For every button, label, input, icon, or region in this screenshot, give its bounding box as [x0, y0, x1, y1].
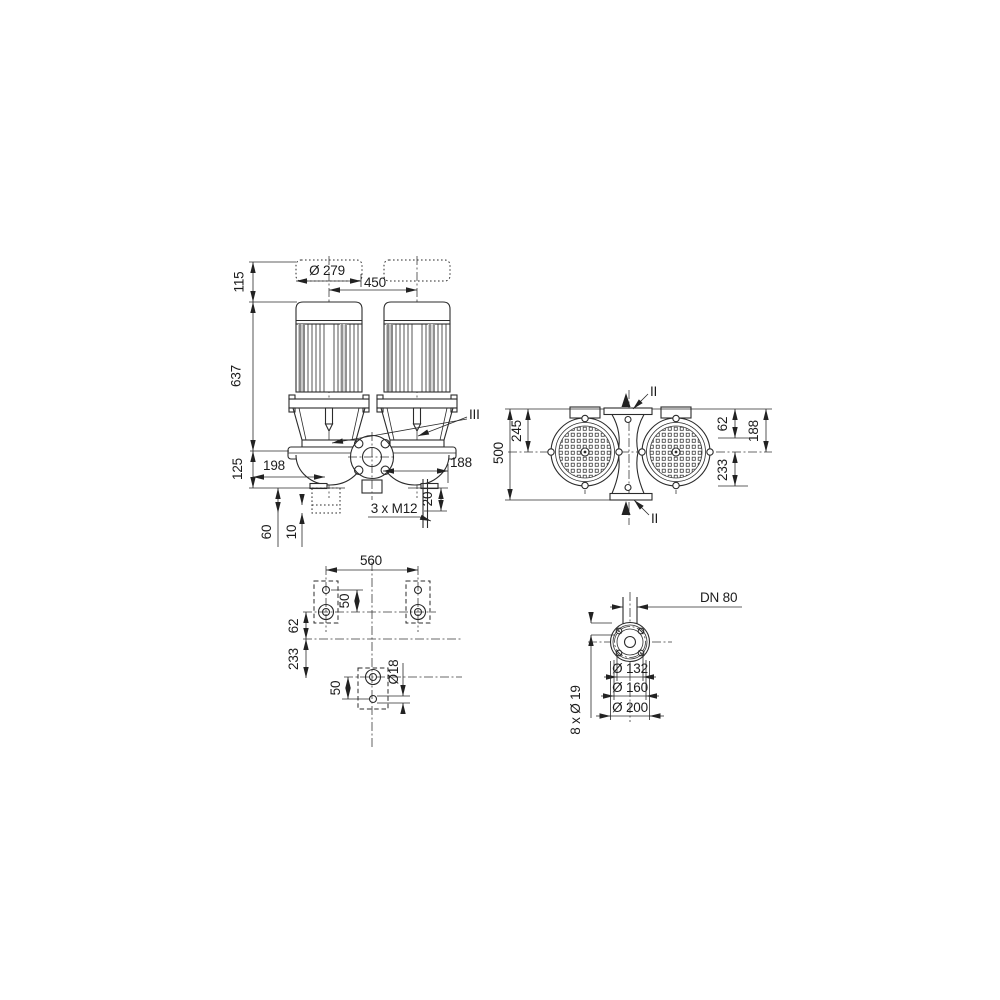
- flange-detail-view: DN 80 8 x Ø 19 Ø 132 Ø 160 Ø: [568, 590, 742, 735]
- dia-132-label: Ø 132: [612, 661, 648, 676]
- dim-60-label: 60: [259, 525, 274, 540]
- dim-115-label: 115: [232, 272, 247, 293]
- dia-200-label: Ø 200: [612, 700, 648, 715]
- dim-50-upper-label: 50: [337, 594, 352, 609]
- dim-233-foundation-label: 233: [286, 648, 301, 670]
- dim-188-front-label: 188: [450, 455, 472, 470]
- section-iii-label: III: [469, 407, 480, 422]
- pump-dimensional-drawing: 115 637 125 Ø 279 450 198 188 20 60: [0, 0, 1000, 1000]
- section-ii-bottom-label: II: [651, 511, 658, 526]
- dia-160-label: Ø 160: [612, 680, 648, 695]
- dn-label: DN 80: [700, 590, 737, 605]
- dim-198-label: 198: [263, 458, 285, 473]
- dim-62-foundation-label: 62: [286, 619, 301, 634]
- dim-10-label: 10: [284, 525, 299, 540]
- dim-245-label: 245: [509, 420, 524, 442]
- foundation-plan-view: 560 50 62 233 50 Ø18: [286, 553, 462, 748]
- tapping-label: 3 x M12: [371, 501, 418, 516]
- dim-50-lower-label: 50: [328, 681, 343, 696]
- section-ii-top-label: II: [650, 384, 657, 399]
- dim-233-plan-label: 233: [715, 459, 730, 481]
- motor-spacing-label: 450: [364, 275, 386, 290]
- plan-dimensions: 500 245 62 188 233: [491, 409, 772, 500]
- plan-view: II II 500 245 62 188 233: [491, 384, 772, 526]
- dim-188-plan-label: 188: [746, 420, 761, 442]
- motor-diameter-label: Ø 279: [309, 263, 345, 278]
- foundation-dimensions: 560 50 62 233 50 Ø18: [286, 553, 418, 714]
- flange-dimensions: DN 80 8 x Ø 19 Ø 132 Ø 160 Ø: [568, 590, 742, 735]
- dim-62-plan-label: 62: [715, 417, 730, 432]
- foundation-pocket: [312, 488, 340, 513]
- front-elevation-view: 115 637 125 Ø 279 450 198 188 20 60: [229, 256, 480, 547]
- dim-125-label: 125: [230, 458, 245, 480]
- hole-diameter-label: Ø18: [386, 660, 401, 685]
- dim-560-label: 560: [360, 553, 382, 568]
- dim-500-label: 500: [491, 442, 506, 464]
- bolt-holes-label: 8 x Ø 19: [568, 685, 583, 734]
- dim-20-label: 20: [420, 492, 435, 507]
- dim-637-label: 637: [229, 365, 244, 387]
